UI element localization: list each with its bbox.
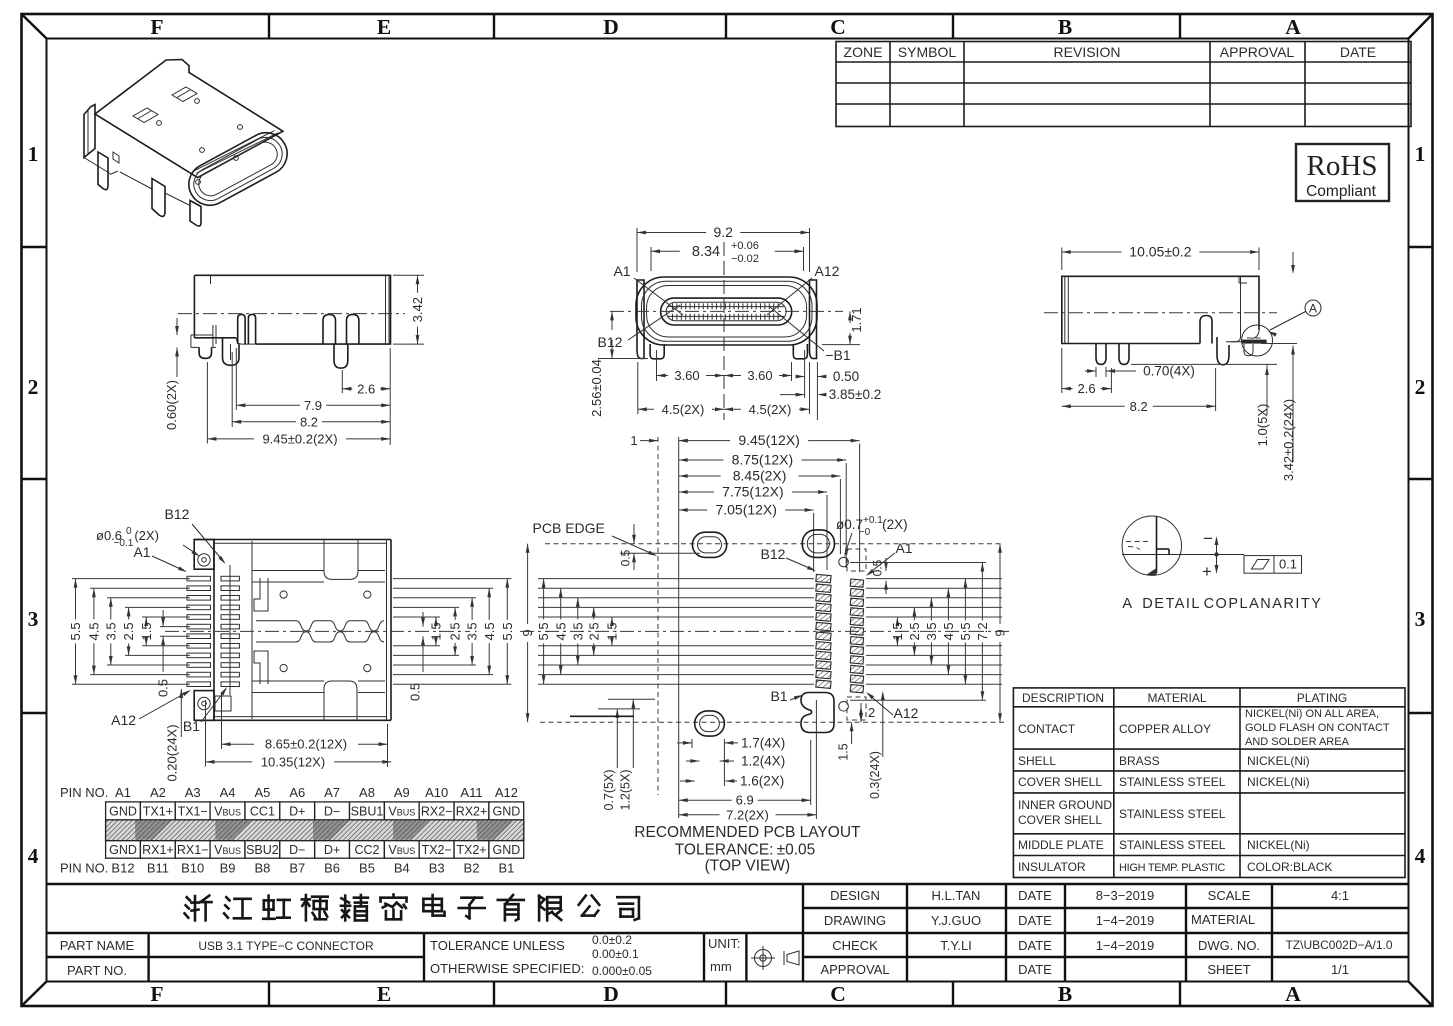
svg-text:1.2(5X): 1.2(5X): [619, 770, 633, 811]
svg-text:8−3−2019: 8−3−2019: [1096, 888, 1155, 903]
svg-text:DATE: DATE: [1018, 913, 1052, 928]
svg-text:VBUS: VBUS: [214, 804, 241, 818]
svg-text:RX1+: RX1+: [142, 843, 174, 857]
svg-text:1−4−2019: 1−4−2019: [1096, 938, 1155, 953]
svg-text:3.42±0.2(24X): 3.42±0.2(24X): [1281, 399, 1296, 481]
svg-text:A: A: [1285, 982, 1301, 1006]
svg-text:B6: B6: [324, 861, 340, 876]
svg-text:0.1: 0.1: [1279, 557, 1297, 572]
svg-text:2: 2: [868, 705, 875, 720]
svg-text:1.5: 1.5: [605, 622, 620, 640]
svg-text:0.7(5X): 0.7(5X): [602, 770, 616, 811]
svg-text:SYMBOL: SYMBOL: [898, 44, 957, 60]
svg-text:DATE: DATE: [1340, 44, 1376, 60]
svg-text:B4: B4: [394, 861, 410, 876]
svg-text:GND: GND: [493, 804, 521, 818]
svg-text:B5: B5: [359, 861, 375, 876]
svg-text:GOLD FLASH ON CONTACT: GOLD FLASH ON CONTACT: [1245, 722, 1390, 734]
svg-text:PLATING: PLATING: [1297, 691, 1347, 705]
svg-text:5.5: 5.5: [500, 622, 515, 640]
svg-text:7.9: 7.9: [304, 398, 322, 413]
svg-text:1−4−2019: 1−4−2019: [1096, 913, 1155, 928]
svg-text:4: 4: [28, 844, 39, 868]
svg-text:0.60(2X): 0.60(2X): [164, 380, 179, 430]
svg-text:B1: B1: [498, 861, 514, 876]
svg-text:A11: A11: [460, 785, 482, 800]
svg-text:4:1: 4:1: [1331, 888, 1349, 903]
svg-text:0.0±0.2: 0.0±0.2: [592, 933, 632, 947]
svg-text:9.2: 9.2: [713, 224, 733, 240]
svg-text:RX1−: RX1−: [177, 843, 209, 857]
svg-text:MATERIAL: MATERIAL: [1147, 691, 1206, 705]
svg-text:A7: A7: [324, 785, 340, 800]
svg-text:0.50: 0.50: [833, 369, 859, 384]
svg-text:5.5: 5.5: [68, 622, 83, 640]
svg-text:D+: D+: [324, 843, 340, 857]
svg-text:−B1: −B1: [825, 347, 851, 363]
svg-text:2.5: 2.5: [586, 622, 601, 640]
svg-text:1.7(4X): 1.7(4X): [741, 735, 785, 750]
svg-text:2.5: 2.5: [448, 622, 463, 640]
svg-text:7.75(12X): 7.75(12X): [722, 484, 783, 500]
svg-text:GND: GND: [109, 804, 137, 818]
svg-text:INSULATOR: INSULATOR: [1018, 860, 1086, 874]
svg-text:COPPER ALLOY: COPPER ALLOY: [1119, 722, 1211, 736]
svg-text:PCB EDGE: PCB EDGE: [533, 520, 605, 536]
svg-text:0.000±0.05: 0.000±0.05: [592, 964, 652, 978]
svg-text:SCALE: SCALE: [1208, 888, 1251, 903]
svg-text:COVER SHELL: COVER SHELL: [1018, 775, 1102, 789]
svg-text:TX2+: TX2+: [456, 843, 486, 857]
svg-text:1.5: 1.5: [837, 743, 851, 760]
svg-text:8.65±0.2(12X): 8.65±0.2(12X): [265, 737, 347, 752]
svg-text:MATERIAL: MATERIAL: [1191, 912, 1255, 927]
svg-text:SBU1: SBU1: [351, 804, 384, 818]
svg-text:GND: GND: [109, 843, 137, 857]
svg-text:B12: B12: [761, 546, 786, 562]
svg-text:1: 1: [1415, 142, 1426, 166]
svg-text:0.00±0.1: 0.00±0.1: [592, 947, 639, 961]
svg-text:SHEET: SHEET: [1207, 962, 1250, 977]
svg-text:8.34: 8.34: [692, 244, 720, 260]
svg-text:3.60: 3.60: [747, 368, 772, 383]
svg-text:B9: B9: [220, 861, 236, 876]
svg-text:7.05(12X): 7.05(12X): [715, 502, 776, 518]
svg-text:F: F: [150, 15, 163, 39]
svg-text:8.45(2X): 8.45(2X): [733, 468, 787, 484]
svg-text:B1: B1: [770, 688, 787, 704]
svg-text:C: C: [830, 982, 846, 1006]
svg-text:VBUS: VBUS: [388, 804, 415, 818]
svg-text:9.45(12X): 9.45(12X): [738, 432, 799, 448]
svg-text:NICKEL(Ni) ON ALL AREA,: NICKEL(Ni) ON ALL AREA,: [1245, 708, 1379, 720]
svg-text:−0.02: −0.02: [731, 253, 759, 265]
svg-text:9: 9: [993, 629, 1008, 636]
svg-text:TOLERANCE: ±0.05: TOLERANCE: ±0.05: [675, 842, 816, 859]
svg-text:COVER SHELL: COVER SHELL: [1018, 813, 1102, 827]
svg-text:2.6: 2.6: [357, 381, 375, 396]
svg-text:VBUS: VBUS: [214, 843, 241, 857]
svg-text:7.2(2X): 7.2(2X): [726, 807, 769, 822]
svg-text:Compliant: Compliant: [1306, 183, 1376, 200]
svg-text:+0.06: +0.06: [731, 240, 759, 252]
svg-text:0.5: 0.5: [408, 683, 423, 701]
svg-text:6.9: 6.9: [736, 793, 754, 808]
svg-text:INNER GROUND: INNER GROUND: [1018, 798, 1112, 812]
svg-text:0.20(24X): 0.20(24X): [165, 724, 180, 781]
svg-text:+: +: [1202, 562, 1212, 581]
svg-text:A12: A12: [495, 785, 518, 800]
svg-text:0.70(4X): 0.70(4X): [1143, 364, 1195, 379]
svg-text:TX1−: TX1−: [178, 804, 208, 818]
svg-text:COPLANARITY: COPLANARITY: [1204, 596, 1323, 612]
svg-text:BRASS: BRASS: [1119, 754, 1160, 768]
svg-text:D: D: [603, 982, 619, 1006]
svg-text:8.2: 8.2: [300, 414, 318, 429]
svg-text:2.5: 2.5: [121, 622, 136, 640]
svg-text:T.Y.LI: T.Y.LI: [940, 938, 972, 953]
svg-text:ZONE: ZONE: [844, 44, 883, 60]
svg-text:COLOR:BLACK: COLOR:BLACK: [1247, 860, 1332, 874]
svg-text:A10: A10: [425, 785, 448, 800]
svg-text:PART NO.: PART NO.: [67, 963, 127, 978]
svg-text:DWG. NO.: DWG. NO.: [1198, 938, 1260, 953]
svg-text:DATE: DATE: [1018, 962, 1052, 977]
svg-text:NICKEL(Ni): NICKEL(Ni): [1247, 838, 1310, 852]
svg-text:A1: A1: [613, 263, 630, 279]
svg-text:A: A: [1309, 302, 1317, 316]
svg-text:B8: B8: [254, 861, 270, 876]
svg-text:4.5: 4.5: [553, 622, 568, 640]
svg-text:DATE: DATE: [1018, 938, 1052, 953]
svg-text:A12: A12: [815, 263, 840, 279]
svg-text:VBUS: VBUS: [388, 843, 415, 857]
svg-text:STAINLESS STEEL: STAINLESS STEEL: [1119, 807, 1226, 821]
svg-text:A DETAIL: A DETAIL: [1122, 596, 1201, 612]
svg-text:RECOMMENDED PCB LAYOUT: RECOMMENDED PCB LAYOUT: [634, 824, 861, 841]
svg-text:CC1: CC1: [250, 804, 275, 818]
svg-text:B12: B12: [598, 334, 623, 350]
svg-text:1.0(5X): 1.0(5X): [1255, 404, 1270, 447]
svg-text:3.5: 3.5: [924, 622, 939, 640]
svg-text:PART NAME: PART NAME: [60, 938, 135, 953]
svg-text:C: C: [830, 15, 846, 39]
svg-text:A8: A8: [359, 785, 375, 800]
svg-text:DESCRIPTION: DESCRIPTION: [1022, 691, 1104, 705]
svg-text:B12: B12: [111, 861, 134, 876]
svg-text:(TOP VIEW): (TOP VIEW): [705, 858, 791, 875]
svg-text:A6: A6: [289, 785, 305, 800]
svg-text:B: B: [1058, 982, 1072, 1006]
svg-text:REVISION: REVISION: [1054, 44, 1121, 60]
svg-text:B3: B3: [429, 861, 445, 876]
svg-text:A3: A3: [185, 785, 201, 800]
svg-text:10.35(12X): 10.35(12X): [261, 754, 325, 769]
svg-text:PIN NO.: PIN NO.: [60, 861, 108, 876]
svg-text:1.5: 1.5: [139, 622, 154, 640]
svg-text:3.5: 3.5: [570, 622, 585, 640]
svg-text:DESIGN: DESIGN: [830, 888, 880, 903]
svg-text:0.5: 0.5: [619, 549, 633, 566]
svg-text:A1: A1: [895, 540, 912, 556]
svg-text:RX2−: RX2−: [421, 804, 453, 818]
svg-text:3.5: 3.5: [465, 622, 480, 640]
svg-text:0.5: 0.5: [156, 679, 171, 697]
svg-text:A2: A2: [150, 785, 166, 800]
svg-text:PIN NO.: PIN NO.: [60, 785, 108, 800]
svg-text:APPROVAL: APPROVAL: [820, 962, 889, 977]
svg-text:NICKEL(Ni): NICKEL(Ni): [1247, 754, 1310, 768]
svg-text:4.5: 4.5: [87, 622, 102, 640]
svg-text:10.05±0.2: 10.05±0.2: [1129, 244, 1191, 260]
svg-text:UNIT:: UNIT:: [708, 936, 741, 951]
svg-text:9.45±0.2(2X): 9.45±0.2(2X): [262, 431, 337, 446]
svg-text:2.56±0.04: 2.56±0.04: [589, 359, 604, 417]
svg-text:3: 3: [28, 607, 39, 631]
svg-text:F: F: [150, 982, 163, 1006]
svg-text:STAINLESS STEEL: STAINLESS STEEL: [1119, 838, 1226, 852]
svg-text:TX1+: TX1+: [143, 804, 173, 818]
svg-text:STAINLESS STEEL: STAINLESS STEEL: [1119, 775, 1226, 789]
svg-text:USB 3.1 TYPE−C CONNECTOR: USB 3.1 TYPE−C CONNECTOR: [198, 939, 374, 953]
svg-text:B1: B1: [183, 718, 200, 734]
svg-text:B7: B7: [289, 861, 305, 876]
svg-text:−: −: [1203, 529, 1213, 548]
svg-text:0.3(24X): 0.3(24X): [868, 751, 882, 799]
svg-text:DRAWING: DRAWING: [824, 913, 886, 928]
svg-text:1.2(4X): 1.2(4X): [741, 754, 785, 769]
svg-text:SHELL: SHELL: [1018, 754, 1056, 768]
svg-text:4.5(2X): 4.5(2X): [749, 402, 792, 417]
svg-text:CHECK: CHECK: [832, 938, 878, 953]
svg-text:3.42: 3.42: [410, 297, 425, 322]
svg-text:A12: A12: [111, 712, 136, 728]
svg-text:3.85±0.2: 3.85±0.2: [829, 387, 881, 402]
svg-text:A5: A5: [254, 785, 270, 800]
svg-text:1.5: 1.5: [890, 622, 905, 640]
svg-text:A1: A1: [115, 785, 131, 800]
svg-text:3.60: 3.60: [674, 368, 699, 383]
svg-text:D−: D−: [289, 843, 305, 857]
svg-text:1.71: 1.71: [849, 307, 864, 332]
svg-text:A: A: [1285, 15, 1301, 39]
svg-text:HIGH TEMP. PLASTIC: HIGH TEMP. PLASTIC: [1119, 862, 1225, 874]
svg-text:E: E: [377, 15, 391, 39]
svg-text:RX2+: RX2+: [456, 804, 488, 818]
svg-text:SBU2: SBU2: [246, 843, 279, 857]
svg-text:D−: D−: [324, 804, 340, 818]
svg-text:2.5: 2.5: [907, 622, 922, 640]
svg-text:RoHS: RoHS: [1307, 150, 1378, 182]
svg-text:Y.J.GUO: Y.J.GUO: [931, 913, 981, 928]
svg-text:4.5(2X): 4.5(2X): [662, 402, 705, 417]
svg-text:A12: A12: [894, 705, 919, 721]
svg-text:GND: GND: [493, 843, 521, 857]
svg-text:2: 2: [1415, 375, 1426, 399]
svg-text:CC2: CC2: [354, 843, 379, 857]
svg-text:3.5: 3.5: [103, 622, 118, 640]
svg-text:B10: B10: [181, 861, 204, 876]
svg-text:AND SOLDER AREA: AND SOLDER AREA: [1245, 736, 1350, 748]
svg-text:4.5: 4.5: [941, 622, 956, 640]
svg-text:5.5: 5.5: [958, 622, 973, 640]
svg-text:8.75(12X): 8.75(12X): [732, 452, 793, 468]
svg-text:TX2−: TX2−: [422, 843, 452, 857]
svg-text:1: 1: [630, 433, 637, 448]
svg-text:APPROVAL: APPROVAL: [1220, 44, 1295, 60]
svg-text:9: 9: [520, 629, 535, 636]
svg-text:3: 3: [1415, 607, 1426, 631]
svg-text:0.5: 0.5: [871, 559, 885, 576]
svg-text:NICKEL(Ni): NICKEL(Ni): [1247, 775, 1310, 789]
svg-text:5.5: 5.5: [536, 622, 551, 640]
svg-text:B12: B12: [165, 506, 190, 522]
svg-text:1.6(2X): 1.6(2X): [740, 773, 784, 788]
svg-text:2.6: 2.6: [1078, 381, 1096, 396]
svg-text:A9: A9: [394, 785, 410, 800]
svg-text:2: 2: [28, 375, 39, 399]
svg-text:MIDDLE PLATE: MIDDLE PLATE: [1018, 838, 1104, 852]
svg-text:D+: D+: [289, 804, 305, 818]
svg-text:A1: A1: [133, 544, 150, 560]
svg-text:A4: A4: [220, 785, 236, 800]
svg-text:B: B: [1058, 15, 1072, 39]
svg-text:DATE: DATE: [1018, 888, 1052, 903]
svg-text:7.2: 7.2: [975, 622, 990, 640]
svg-text:B2: B2: [464, 861, 480, 876]
svg-text:E: E: [377, 982, 391, 1006]
svg-text:TOLERANCE UNLESS: TOLERANCE UNLESS: [430, 938, 565, 953]
svg-text:4.5: 4.5: [482, 622, 497, 640]
svg-text:CONTACT: CONTACT: [1018, 722, 1076, 736]
svg-text:TZ\UBC002D−A/1.0: TZ\UBC002D−A/1.0: [1285, 938, 1392, 952]
svg-text:mm: mm: [710, 959, 732, 974]
svg-text:B11: B11: [147, 861, 169, 876]
svg-text:1: 1: [28, 142, 39, 166]
svg-text:1/1: 1/1: [1331, 962, 1349, 977]
svg-text:OTHERWISE SPECIFIED:: OTHERWISE SPECIFIED:: [430, 961, 584, 976]
svg-text:4: 4: [1415, 844, 1426, 868]
svg-text:D: D: [603, 15, 619, 39]
svg-text:8.2: 8.2: [1130, 399, 1148, 414]
svg-text:1.5: 1.5: [429, 622, 444, 640]
svg-text:H.L.TAN: H.L.TAN: [932, 888, 981, 903]
